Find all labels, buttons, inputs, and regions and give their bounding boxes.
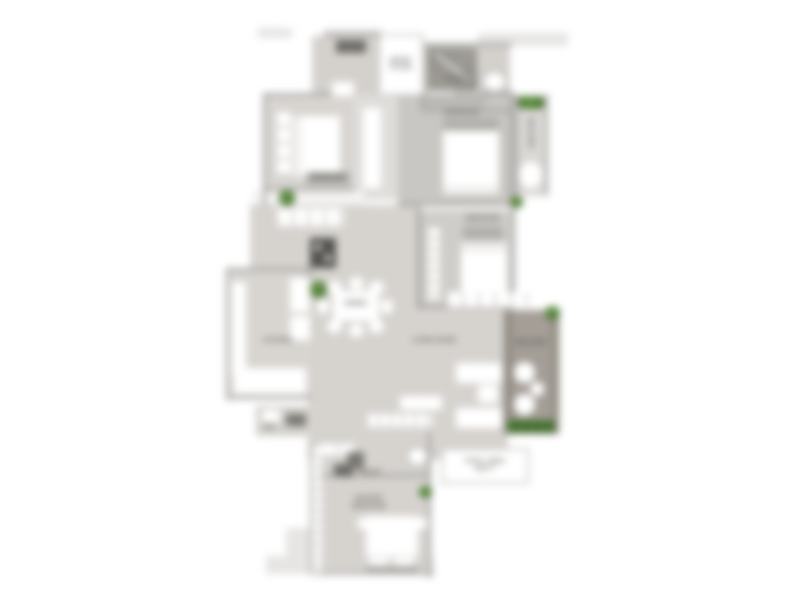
- wc-sink: [262, 410, 280, 422]
- wall: [263, 188, 355, 191]
- fridge: [290, 278, 310, 312]
- walkway-top-left-step: [258, 28, 292, 38]
- armchair: [478, 385, 498, 403]
- door-closet-strip: [363, 108, 381, 188]
- counter: [290, 316, 310, 340]
- burner: [325, 255, 331, 261]
- coffee-table: [400, 396, 442, 410]
- dining-chair: [349, 277, 364, 290]
- bed-headboard: [366, 566, 418, 571]
- toilet: [406, 446, 429, 467]
- toilet-bottom-label: TOILET: [352, 470, 388, 477]
- area-info-box: TOTAL AREA SQ.FT.: [441, 448, 529, 484]
- wall: [316, 572, 434, 575]
- cabinet: [322, 444, 337, 455]
- tv-console: [368, 414, 432, 427]
- closet-row: [448, 292, 528, 307]
- sink: [334, 464, 353, 477]
- wardrobe-window-strip: [428, 228, 440, 300]
- bed-pillows: [291, 116, 301, 176]
- bed-headboard: [443, 118, 499, 131]
- wall: [503, 308, 506, 436]
- floorplan-canvas: ENTRY FOYER TOILET BEDROOM BEDROOM BALCO…: [0, 0, 800, 600]
- wall: [324, 33, 382, 36]
- wall: [417, 208, 421, 309]
- dining-chair: [349, 324, 364, 337]
- kitchen-counter-bottom: [234, 368, 306, 394]
- stove: [310, 238, 336, 268]
- entry-label-box: ENTRY FOYER: [378, 34, 424, 96]
- wall: [545, 94, 548, 196]
- dining-label: DINING: [337, 301, 375, 308]
- wc-fixture: [286, 414, 306, 426]
- plant: [510, 196, 523, 208]
- bed-pillows: [461, 242, 507, 252]
- dining-chair: [369, 320, 384, 333]
- balcony-chair: [514, 362, 535, 383]
- balcony-table: [530, 382, 544, 396]
- kitchen-label: KITCHEN: [250, 338, 306, 345]
- plant: [545, 306, 560, 320]
- dining-chair: [327, 320, 342, 333]
- kitchen-counter-left: [232, 282, 246, 376]
- entry-label-line2: FOYER: [390, 65, 412, 72]
- plant: [310, 281, 327, 298]
- bed-foot-bench: [443, 183, 499, 195]
- sofa: [456, 363, 502, 383]
- wall: [515, 94, 518, 196]
- toilet-top-label: TOILET: [440, 76, 470, 83]
- plant: [419, 486, 432, 498]
- balcony-chair: [514, 394, 535, 415]
- floorplan: ENTRY FOYER TOILET BEDROOM BEDROOM BALCO…: [0, 0, 800, 600]
- bedroom-top-right-label: BEDROOM: [432, 110, 492, 117]
- wc-label: WC: [258, 425, 282, 432]
- wall: [226, 268, 229, 400]
- plant: [279, 190, 295, 206]
- nightstand: [418, 518, 427, 529]
- vanity-counter: [336, 40, 366, 53]
- wardrobe: [424, 94, 486, 107]
- entry-label-line1: ENTRY: [390, 58, 412, 65]
- burner: [315, 244, 321, 250]
- master-label-line1: MASTER: [340, 496, 398, 503]
- wall: [228, 268, 312, 271]
- kitchen-cabinets: [278, 208, 344, 226]
- pillow: [394, 558, 414, 566]
- planter-row: [507, 420, 555, 433]
- dining-chair: [317, 299, 329, 314]
- living-label: LIVING ROOM: [408, 338, 460, 345]
- balcony-right-edge-right: [553, 310, 559, 434]
- toilet: [482, 70, 507, 93]
- wardrobe: [277, 112, 290, 176]
- floor-connector: [308, 396, 338, 440]
- balcony-chair: [519, 162, 542, 188]
- window-wall: [312, 446, 322, 572]
- bed-headboard: [463, 226, 503, 240]
- sofa: [456, 408, 502, 428]
- sink: [332, 82, 354, 96]
- wall: [398, 203, 514, 206]
- wall: [228, 396, 312, 399]
- bedroom-top-left-label: BEDROOM: [306, 175, 350, 182]
- bedroom-mid-right-label: BEDROOM: [458, 216, 508, 223]
- wall: [424, 43, 512, 46]
- area-box-line2: SQ.FT.: [475, 466, 495, 473]
- dining-chair: [381, 299, 393, 314]
- balcony-right-label: BALCONY: [512, 340, 552, 347]
- pillow: [369, 558, 389, 566]
- master-label-line2: BEDROOM: [340, 504, 398, 511]
- bed: [366, 516, 418, 560]
- area-box-line1: TOTAL AREA: [465, 459, 506, 466]
- plant: [518, 96, 544, 109]
- bed: [443, 131, 499, 187]
- balcony-top-label: BALCONY: [526, 118, 533, 148]
